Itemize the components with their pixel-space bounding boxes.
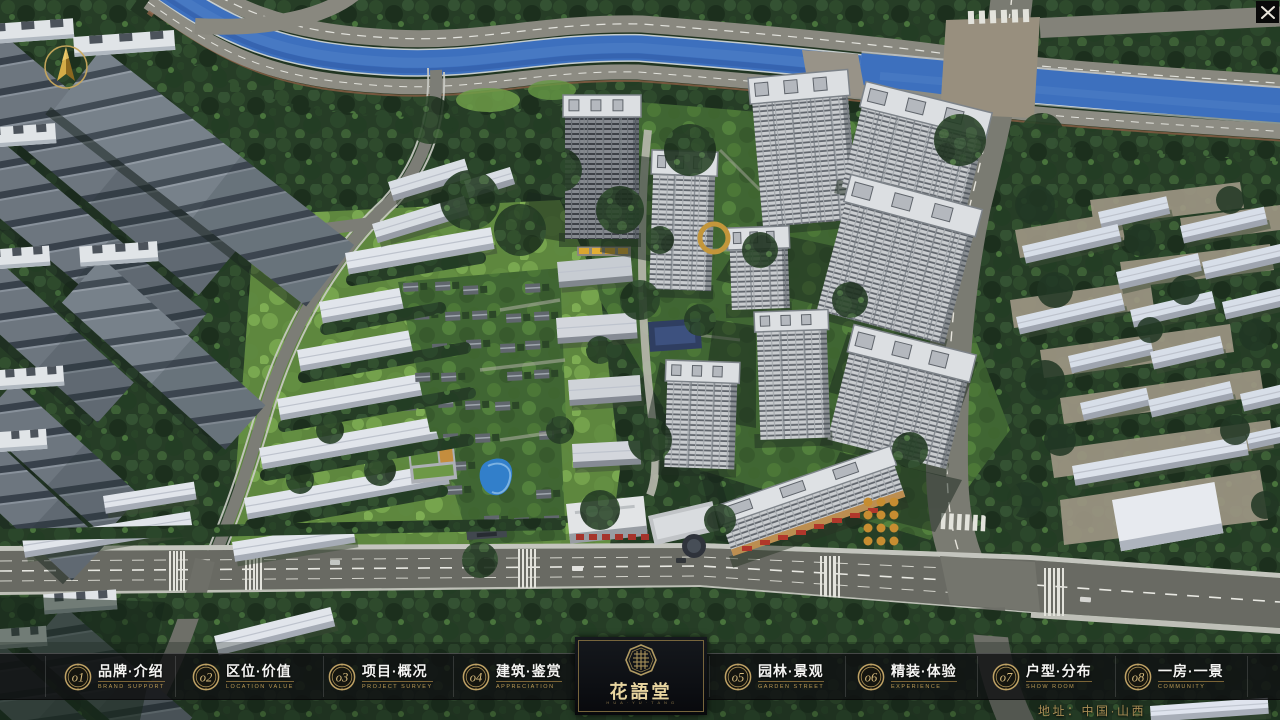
svg-text:o5: o5 <box>732 671 745 685</box>
svg-text:o2: o2 <box>200 671 213 685</box>
svg-text:o7: o7 <box>1000 671 1013 685</box>
svg-text:o6: o6 <box>865 671 878 685</box>
svg-text:o8: o8 <box>1132 671 1145 685</box>
svg-text:o3: o3 <box>336 671 349 685</box>
svg-text:o4: o4 <box>470 671 483 685</box>
svg-text:o1: o1 <box>72 671 85 685</box>
